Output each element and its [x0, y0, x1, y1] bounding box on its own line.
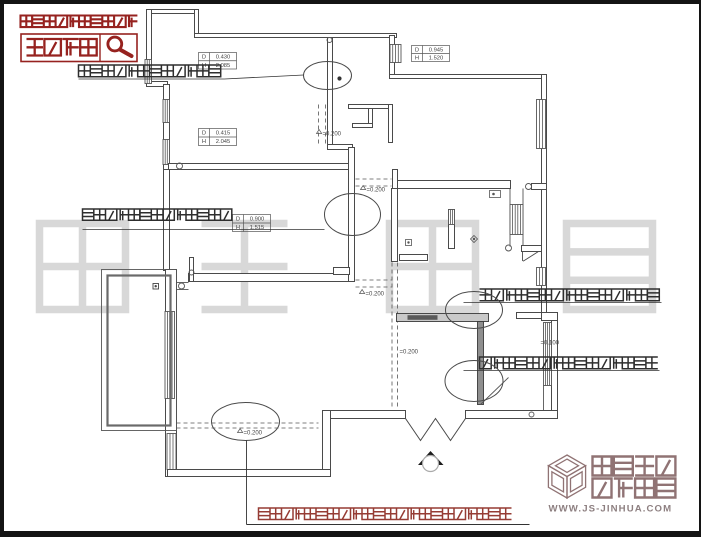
svg-text:WWW.JS-JINHUA.COM: WWW.JS-JINHUA.COM	[549, 504, 673, 515]
svg-text:D: D	[202, 55, 206, 61]
svg-text:=0.200: =0.200	[323, 132, 342, 138]
svg-text:0.415: 0.415	[216, 131, 231, 137]
svg-text:0.945: 0.945	[429, 48, 444, 54]
svg-text:D: D	[415, 48, 419, 54]
svg-text:D: D	[236, 217, 240, 223]
svg-text:2.085: 2.085	[216, 63, 231, 69]
svg-text:=0.200: =0.200	[400, 350, 419, 356]
svg-text:2.045: 2.045	[216, 139, 231, 145]
svg-text:H: H	[236, 225, 240, 231]
svg-text:=0.200: =0.200	[367, 188, 386, 194]
svg-text:0.430: 0.430	[216, 55, 231, 61]
svg-text:H: H	[202, 139, 206, 145]
svg-text:H: H	[415, 56, 419, 62]
svg-text:D: D	[202, 131, 206, 137]
svg-text:=0.200: =0.200	[244, 431, 263, 437]
svg-text:0.900: 0.900	[250, 217, 265, 223]
svg-text:1.520: 1.520	[429, 56, 444, 62]
svg-text:=0.100: =0.100	[541, 341, 560, 347]
svg-text:=0.200: =0.200	[366, 292, 385, 298]
svg-text:1.515: 1.515	[250, 225, 265, 231]
